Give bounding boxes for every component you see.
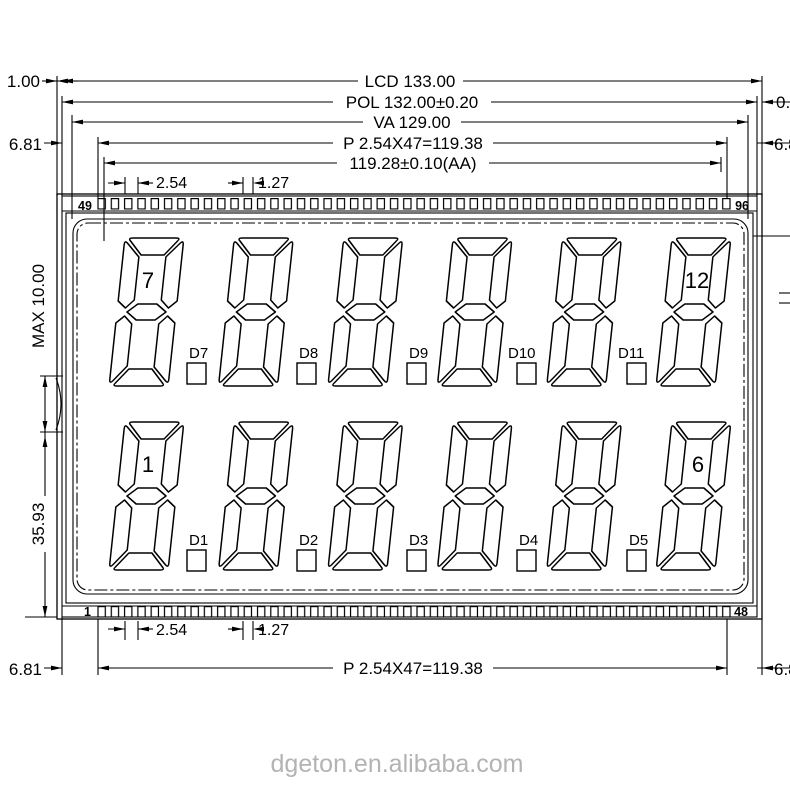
decimal-label: D2 [299, 532, 318, 549]
dim-lower-height: 35.93 [29, 503, 48, 546]
decimal-square [517, 363, 536, 384]
pin-number-bottom-right: 48 [734, 605, 748, 619]
digit-cell [656, 238, 731, 386]
decimal-label: D1 [189, 532, 208, 549]
dim-max-thickness: MAX 10.00 [29, 264, 48, 348]
pin-number-top-right: 96 [735, 199, 749, 213]
decimal-label: D5 [629, 532, 648, 549]
dim-margin-top-right: 6.81 [774, 135, 790, 154]
pin-number-top-left: 49 [78, 199, 92, 213]
digit-cell [437, 422, 512, 570]
digit-index-top-last: 12 [685, 268, 709, 293]
dim-active-area: 119.28±0.10(AA) [349, 154, 476, 173]
digit-cell [219, 238, 294, 386]
decimal-square [407, 550, 426, 571]
bottom-pin-comb [95, 606, 733, 618]
dim-half-pitch-top: 1.27 [258, 175, 289, 192]
decimal-label: D8 [299, 345, 318, 362]
digit-cell [109, 422, 184, 570]
dim-pol-offset-right: 0. [776, 93, 790, 112]
decimal-label: D3 [409, 532, 428, 549]
digit-cell [437, 238, 512, 386]
decimal-label: D9 [409, 345, 428, 362]
dim-pitch-bottom: 2.54 [156, 622, 187, 639]
decimal-label: D10 [508, 345, 536, 362]
digit-grid: 7 12 1 6 [109, 238, 731, 570]
dim-half-pitch-bottom: 1.27 [258, 622, 289, 639]
decimal-square [297, 363, 316, 384]
decimal-square [627, 363, 646, 384]
decimal-label: D4 [519, 532, 538, 549]
dim-va-width: VA 129.00 [373, 113, 450, 132]
digit-cell [328, 422, 403, 570]
top-dimension-lines: LCD 133.00 POL 132.00±0.20 0. VA 129.00 … [7, 72, 790, 241]
digit-index-bottom-last: 6 [692, 452, 704, 477]
decimal-square [297, 550, 316, 571]
decimal-square [407, 363, 426, 384]
digit-cell [219, 422, 294, 570]
dim-pitch-top: 2.54 [156, 175, 187, 192]
decimal-square [517, 550, 536, 571]
dim-lcd-width: LCD 133.00 [365, 72, 456, 91]
dim-margin-top-left: 6.81 [9, 135, 42, 154]
top-pin-comb [95, 198, 733, 210]
decimal-square [187, 550, 206, 571]
decimal-label: D11 [618, 345, 644, 362]
drawing-canvas: 49 96 1 48 7 12 1 6 D7 D8 D9 D10 D11 [0, 0, 790, 790]
digit-cell [547, 238, 622, 386]
dim-margin-bottom-left: 6.81 [9, 660, 42, 679]
pin-number-bottom-left: 1 [84, 605, 91, 619]
dim-pin-pitch-bottom: P 2.54X47=119.38 [343, 659, 483, 678]
digit-index-top-first: 7 [142, 268, 154, 293]
digit-cell [328, 238, 403, 386]
dim-pin-pitch-top: P 2.54X47=119.38 [343, 134, 483, 153]
decimal-square [187, 363, 206, 384]
digit-cell [656, 422, 731, 570]
decimal-square [627, 550, 646, 571]
dim-pol-offset-left: 1.00 [7, 72, 40, 91]
digit-cell [547, 422, 622, 570]
dim-margin-bottom-right: 6.81 [774, 660, 790, 679]
digit-index-bottom-first: 1 [142, 452, 154, 477]
digit-cell [109, 238, 184, 386]
decimal-label: D7 [189, 345, 208, 362]
watermark-text: dgeton.en.alibaba.com [271, 750, 524, 778]
bottom-dimension-lines: 2.54 1.27 P 2.54X47=119.38 6.81 6.81 [9, 617, 790, 679]
lcd-datasheet-drawing: 49 96 1 48 7 12 1 6 D7 D8 D9 D10 D11 [0, 0, 790, 790]
right-edge-details [753, 236, 790, 303]
dim-pol-width: POL 132.00±0.20 [346, 93, 479, 112]
